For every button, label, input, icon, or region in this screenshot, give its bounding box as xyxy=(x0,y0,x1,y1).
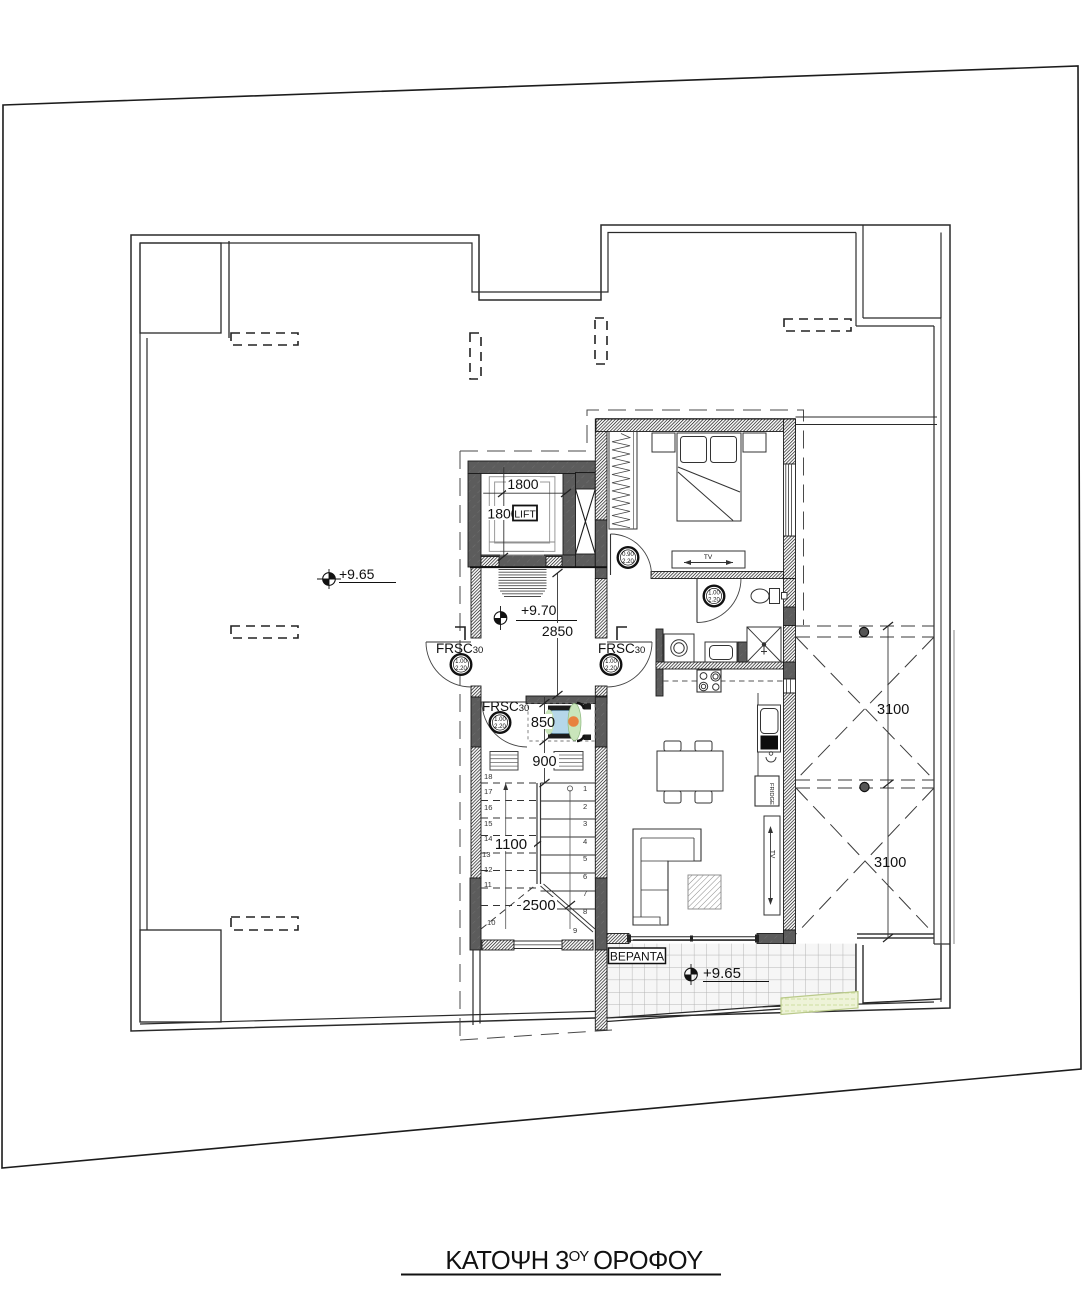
svg-text:17: 17 xyxy=(484,787,492,796)
svg-text:1: 1 xyxy=(583,784,587,793)
svg-text:12: 12 xyxy=(484,865,492,874)
svg-text:LIFT: LIFT xyxy=(514,509,536,521)
svg-text:10: 10 xyxy=(487,918,495,927)
svg-text:8: 8 xyxy=(583,907,587,916)
svg-text:1100: 1100 xyxy=(495,836,527,853)
svg-text:BEPANTA: BEPANTA xyxy=(610,950,664,964)
svg-text:+9.65: +9.65 xyxy=(703,965,741,982)
svg-text:TV: TV xyxy=(769,850,776,859)
svg-text:2.20: 2.20 xyxy=(455,666,467,672)
svg-text:+9.65: +9.65 xyxy=(339,566,375,582)
svg-text:2.20: 2.20 xyxy=(708,598,720,604)
svg-text:2500: 2500 xyxy=(522,897,555,914)
svg-text:3100: 3100 xyxy=(874,855,906,871)
svg-text:TV: TV xyxy=(704,554,713,561)
svg-text:9: 9 xyxy=(573,926,577,935)
svg-text:2.20: 2.20 xyxy=(622,559,634,565)
svg-text:4: 4 xyxy=(583,837,587,846)
svg-text:850: 850 xyxy=(531,715,555,731)
svg-text:15: 15 xyxy=(484,819,492,828)
svg-text:11: 11 xyxy=(484,880,492,889)
svg-text:14: 14 xyxy=(484,834,492,843)
svg-text:13: 13 xyxy=(482,850,490,859)
svg-text:1.00: 1.00 xyxy=(708,591,720,597)
svg-text:18: 18 xyxy=(484,772,492,781)
svg-text:FRIDGE: FRIDGE xyxy=(768,783,774,805)
svg-text:2: 2 xyxy=(583,802,587,811)
svg-text:6: 6 xyxy=(583,872,587,881)
svg-text:1.00: 1.00 xyxy=(455,659,467,665)
svg-text:3: 3 xyxy=(583,819,587,828)
svg-text:2850: 2850 xyxy=(542,623,573,639)
svg-text:2.20: 2.20 xyxy=(494,724,506,730)
svg-text:+9.70: +9.70 xyxy=(521,602,557,618)
svg-text:16: 16 xyxy=(484,803,492,812)
svg-text:1.00: 1.00 xyxy=(605,659,617,665)
svg-text:900: 900 xyxy=(532,754,556,770)
svg-text:2.20: 2.20 xyxy=(605,666,617,672)
svg-text:1.00: 1.00 xyxy=(494,717,506,723)
svg-text:3100: 3100 xyxy=(877,702,909,718)
svg-text:7: 7 xyxy=(583,889,587,898)
svg-text:5: 5 xyxy=(583,854,587,863)
svg-text:0.90: 0.90 xyxy=(622,552,634,558)
svg-text:1800: 1800 xyxy=(507,476,538,492)
